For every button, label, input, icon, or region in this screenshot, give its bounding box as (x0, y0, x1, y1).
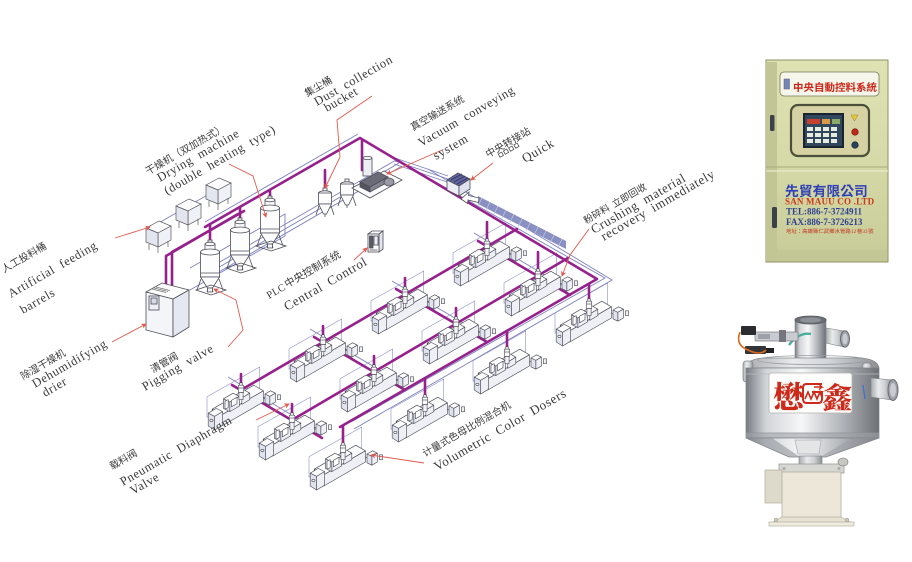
svg-text:TEL:886-7-3724911: TEL:886-7-3724911 (786, 207, 863, 217)
svg-text:FAX:886-7-3726213: FAX:886-7-3726213 (786, 217, 863, 227)
svg-text:SAN MAUU CO .LTD: SAN MAUU CO .LTD (785, 197, 875, 207)
svg-text:33: 33 (862, 229, 868, 235)
svg-text:12: 12 (851, 229, 857, 235)
